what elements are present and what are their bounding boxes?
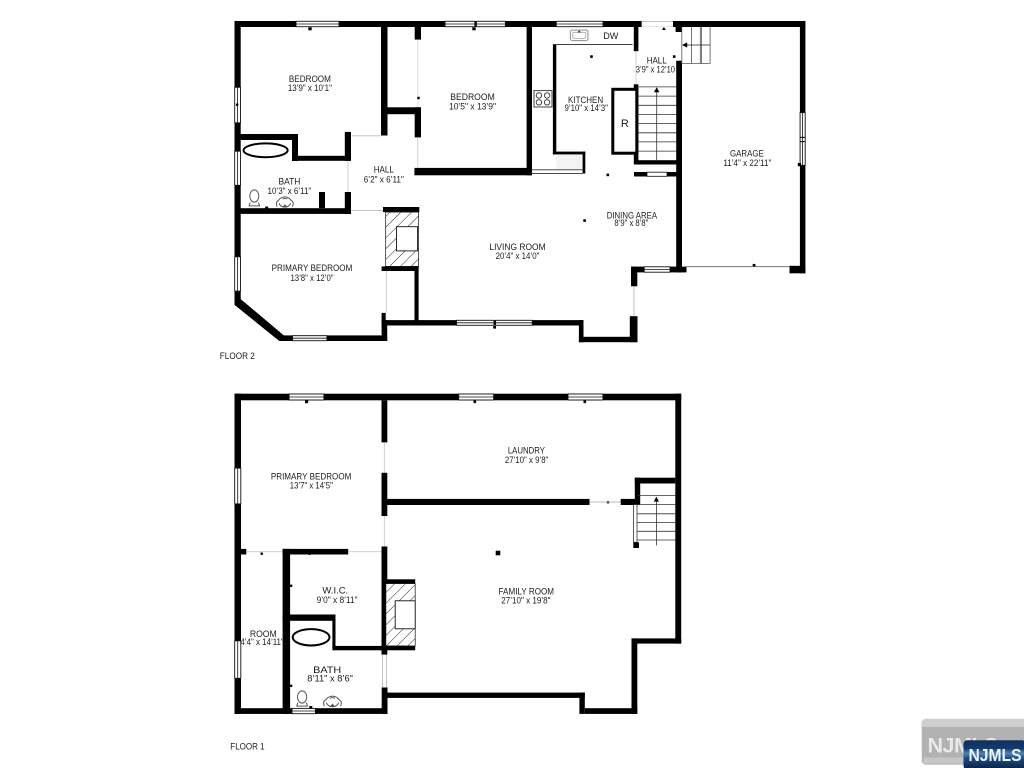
svg-text:4’4" x 14’11": 4’4" x 14’11" (240, 637, 283, 647)
svg-text:BATH: BATH (278, 177, 300, 187)
svg-text:9’10" x 14’3": 9’10" x 14’3" (565, 103, 608, 113)
svg-text:HALL: HALL (374, 165, 394, 175)
svg-text:8’11" x 8’6": 8’11" x 8’6" (307, 673, 353, 683)
svg-text:10’3" x 6’11": 10’3" x 6’11" (268, 186, 312, 196)
svg-text:27’10" x 9’8": 27’10" x 9’8" (505, 455, 549, 465)
svg-text:PRIMARY BEDROOM: PRIMARY BEDROOM (272, 263, 353, 273)
svg-text:3’9" x 12’10: 3’9" x 12’10 (636, 64, 675, 74)
svg-text:FLOOR 1: FLOOR 1 (230, 742, 264, 753)
svg-text:6’2" x 6’11": 6’2" x 6’11" (364, 174, 404, 184)
svg-text:13’9" x 10’1": 13’9" x 10’1" (288, 83, 332, 93)
svg-text:DW: DW (603, 31, 618, 42)
svg-text:13’8" x 12’0": 13’8" x 12’0" (290, 273, 333, 283)
svg-text:R: R (621, 118, 629, 130)
svg-text:9’0" x 8’11": 9’0" x 8’11" (317, 595, 358, 605)
svg-text:NJMLS: NJMLS (969, 745, 1022, 765)
svg-text:11’4" x 22’11": 11’4" x 22’11" (723, 158, 771, 168)
svg-text:27’10" x 19’8": 27’10" x 19’8" (501, 596, 550, 606)
svg-text:10’5" x 13’9": 10’5" x 13’9" (449, 101, 496, 111)
svg-text:8’9" x 8’8": 8’9" x 8’8" (614, 218, 648, 228)
svg-text:20’4" x 14’0": 20’4" x 14’0" (496, 251, 540, 261)
svg-text:FLOOR 2: FLOOR 2 (220, 351, 255, 362)
svg-text:13’7" x 14’5": 13’7" x 14’5" (290, 481, 333, 491)
